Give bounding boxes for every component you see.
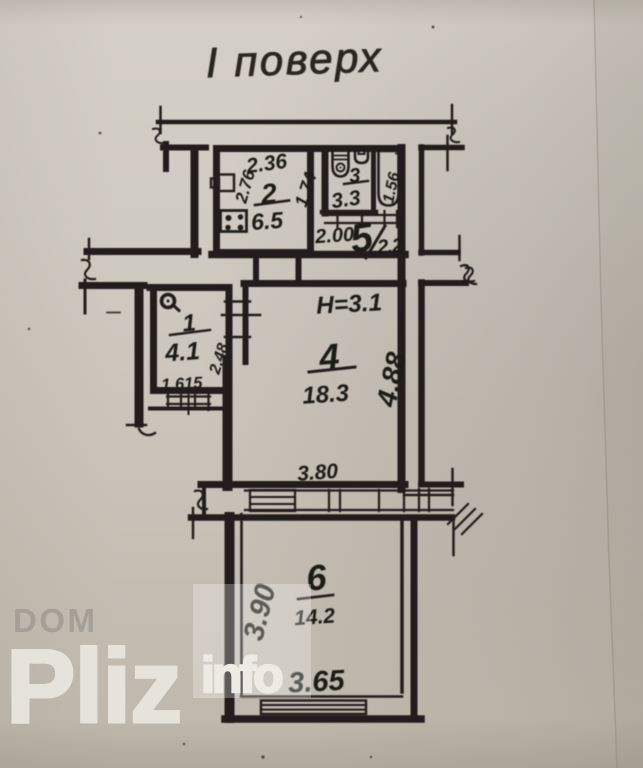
svg-text:3.3: 3.3 — [330, 186, 362, 213]
svg-text:1.615: 1.615 — [161, 374, 204, 394]
svg-text:І поверх: І поверх — [205, 33, 384, 86]
svg-text:2.2: 2.2 — [375, 235, 403, 259]
svg-text:6.5: 6.5 — [250, 207, 285, 235]
svg-text:3.80: 3.80 — [296, 460, 339, 486]
svg-text:Pliz: Pliz — [6, 629, 181, 745]
svg-text:info: info — [201, 647, 282, 703]
svg-text:4.1: 4.1 — [163, 337, 201, 367]
svg-text:18.3: 18.3 — [301, 380, 350, 410]
svg-text:H=3.1: H=3.1 — [315, 289, 382, 319]
